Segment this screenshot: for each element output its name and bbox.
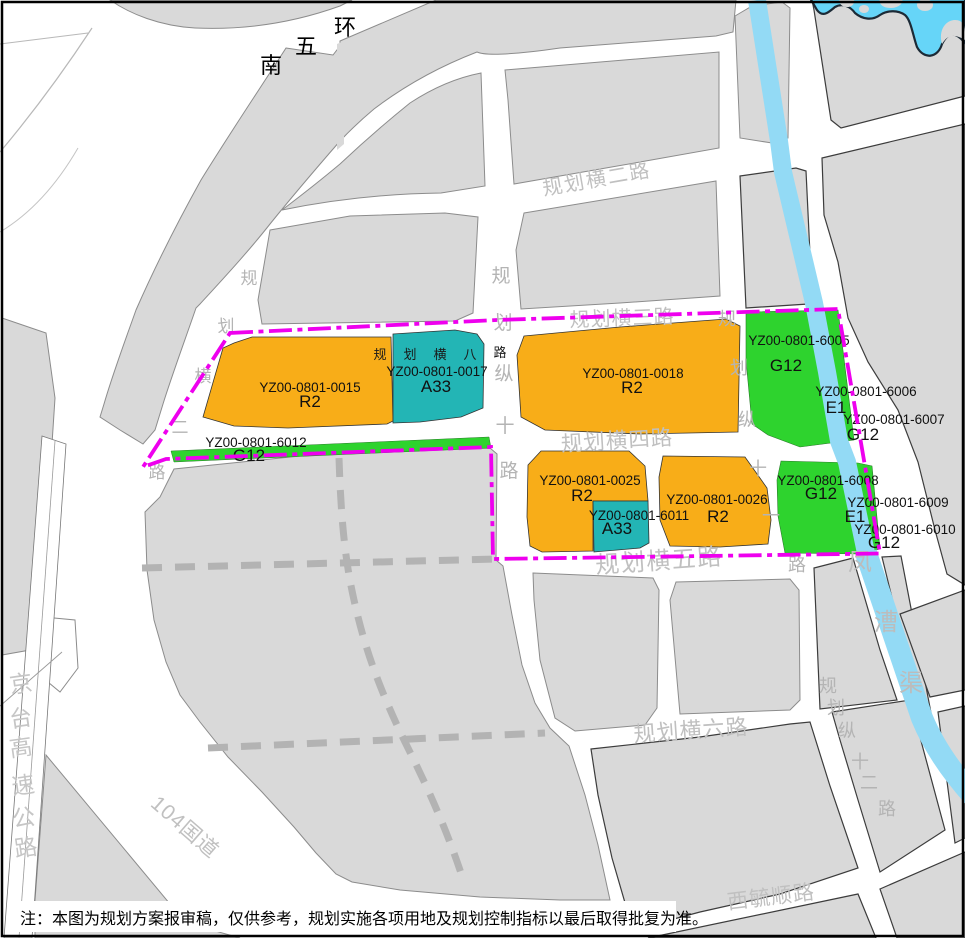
svg-text:YZ00-0801-6006: YZ00-0801-6006 <box>815 384 916 399</box>
svg-text:R2: R2 <box>299 392 321 411</box>
svg-text:纵: 纵 <box>838 721 856 741</box>
svg-text:划: 划 <box>493 312 512 334</box>
svg-text:纵: 纵 <box>494 363 513 385</box>
svg-text:路: 路 <box>13 833 39 862</box>
svg-text:A33: A33 <box>602 519 632 538</box>
svg-text:速: 速 <box>10 771 36 800</box>
svg-text:划: 划 <box>827 698 845 718</box>
svg-text:规: 规 <box>373 347 386 362</box>
svg-text:一: 一 <box>762 506 780 526</box>
svg-text:R2: R2 <box>621 378 643 397</box>
svg-text:R2: R2 <box>707 507 729 526</box>
svg-text:路: 路 <box>878 799 896 819</box>
svg-text:二: 二 <box>860 773 878 793</box>
svg-text:规: 规 <box>241 269 258 288</box>
svg-text:八: 八 <box>463 347 476 362</box>
svg-text:规: 规 <box>819 676 837 696</box>
svg-text:划: 划 <box>730 358 748 378</box>
svg-text:YZ00-0801-6005: YZ00-0801-6005 <box>748 333 849 348</box>
svg-text:纵: 纵 <box>738 410 756 430</box>
svg-text:十: 十 <box>749 459 767 479</box>
svg-text:渠: 渠 <box>899 670 923 697</box>
svg-text:台: 台 <box>8 704 34 733</box>
svg-text:R2: R2 <box>571 486 593 505</box>
svg-text:A33: A33 <box>421 377 451 396</box>
svg-text:G12: G12 <box>868 533 900 552</box>
svg-text:G12: G12 <box>770 356 802 375</box>
svg-text:横: 横 <box>433 347 446 362</box>
svg-text:漕: 漕 <box>874 609 898 636</box>
svg-text:五: 五 <box>295 34 317 59</box>
svg-text:京: 京 <box>8 669 34 698</box>
svg-text:注：本图为规划方案报审稿，仅供参考，规划实施各项用地及规划控: 注：本图为规划方案报审稿，仅供参考，规划实施各项用地及规划控制指标以最后取得批复… <box>20 910 708 928</box>
svg-text:十: 十 <box>851 752 869 772</box>
svg-text:十: 十 <box>495 415 514 437</box>
svg-text:G12: G12 <box>805 484 837 503</box>
svg-text:环: 环 <box>334 15 356 40</box>
svg-text:YZ00-0801-0026: YZ00-0801-0026 <box>666 492 767 507</box>
svg-text:公: 公 <box>10 803 36 832</box>
svg-text:路: 路 <box>788 555 806 575</box>
svg-text:规: 规 <box>491 265 510 287</box>
svg-text:路: 路 <box>493 345 506 360</box>
svg-text:划: 划 <box>403 347 416 362</box>
svg-text:G12: G12 <box>847 425 879 444</box>
svg-text:路: 路 <box>499 460 518 482</box>
svg-text:高: 高 <box>8 733 34 762</box>
svg-text:南: 南 <box>260 53 282 78</box>
